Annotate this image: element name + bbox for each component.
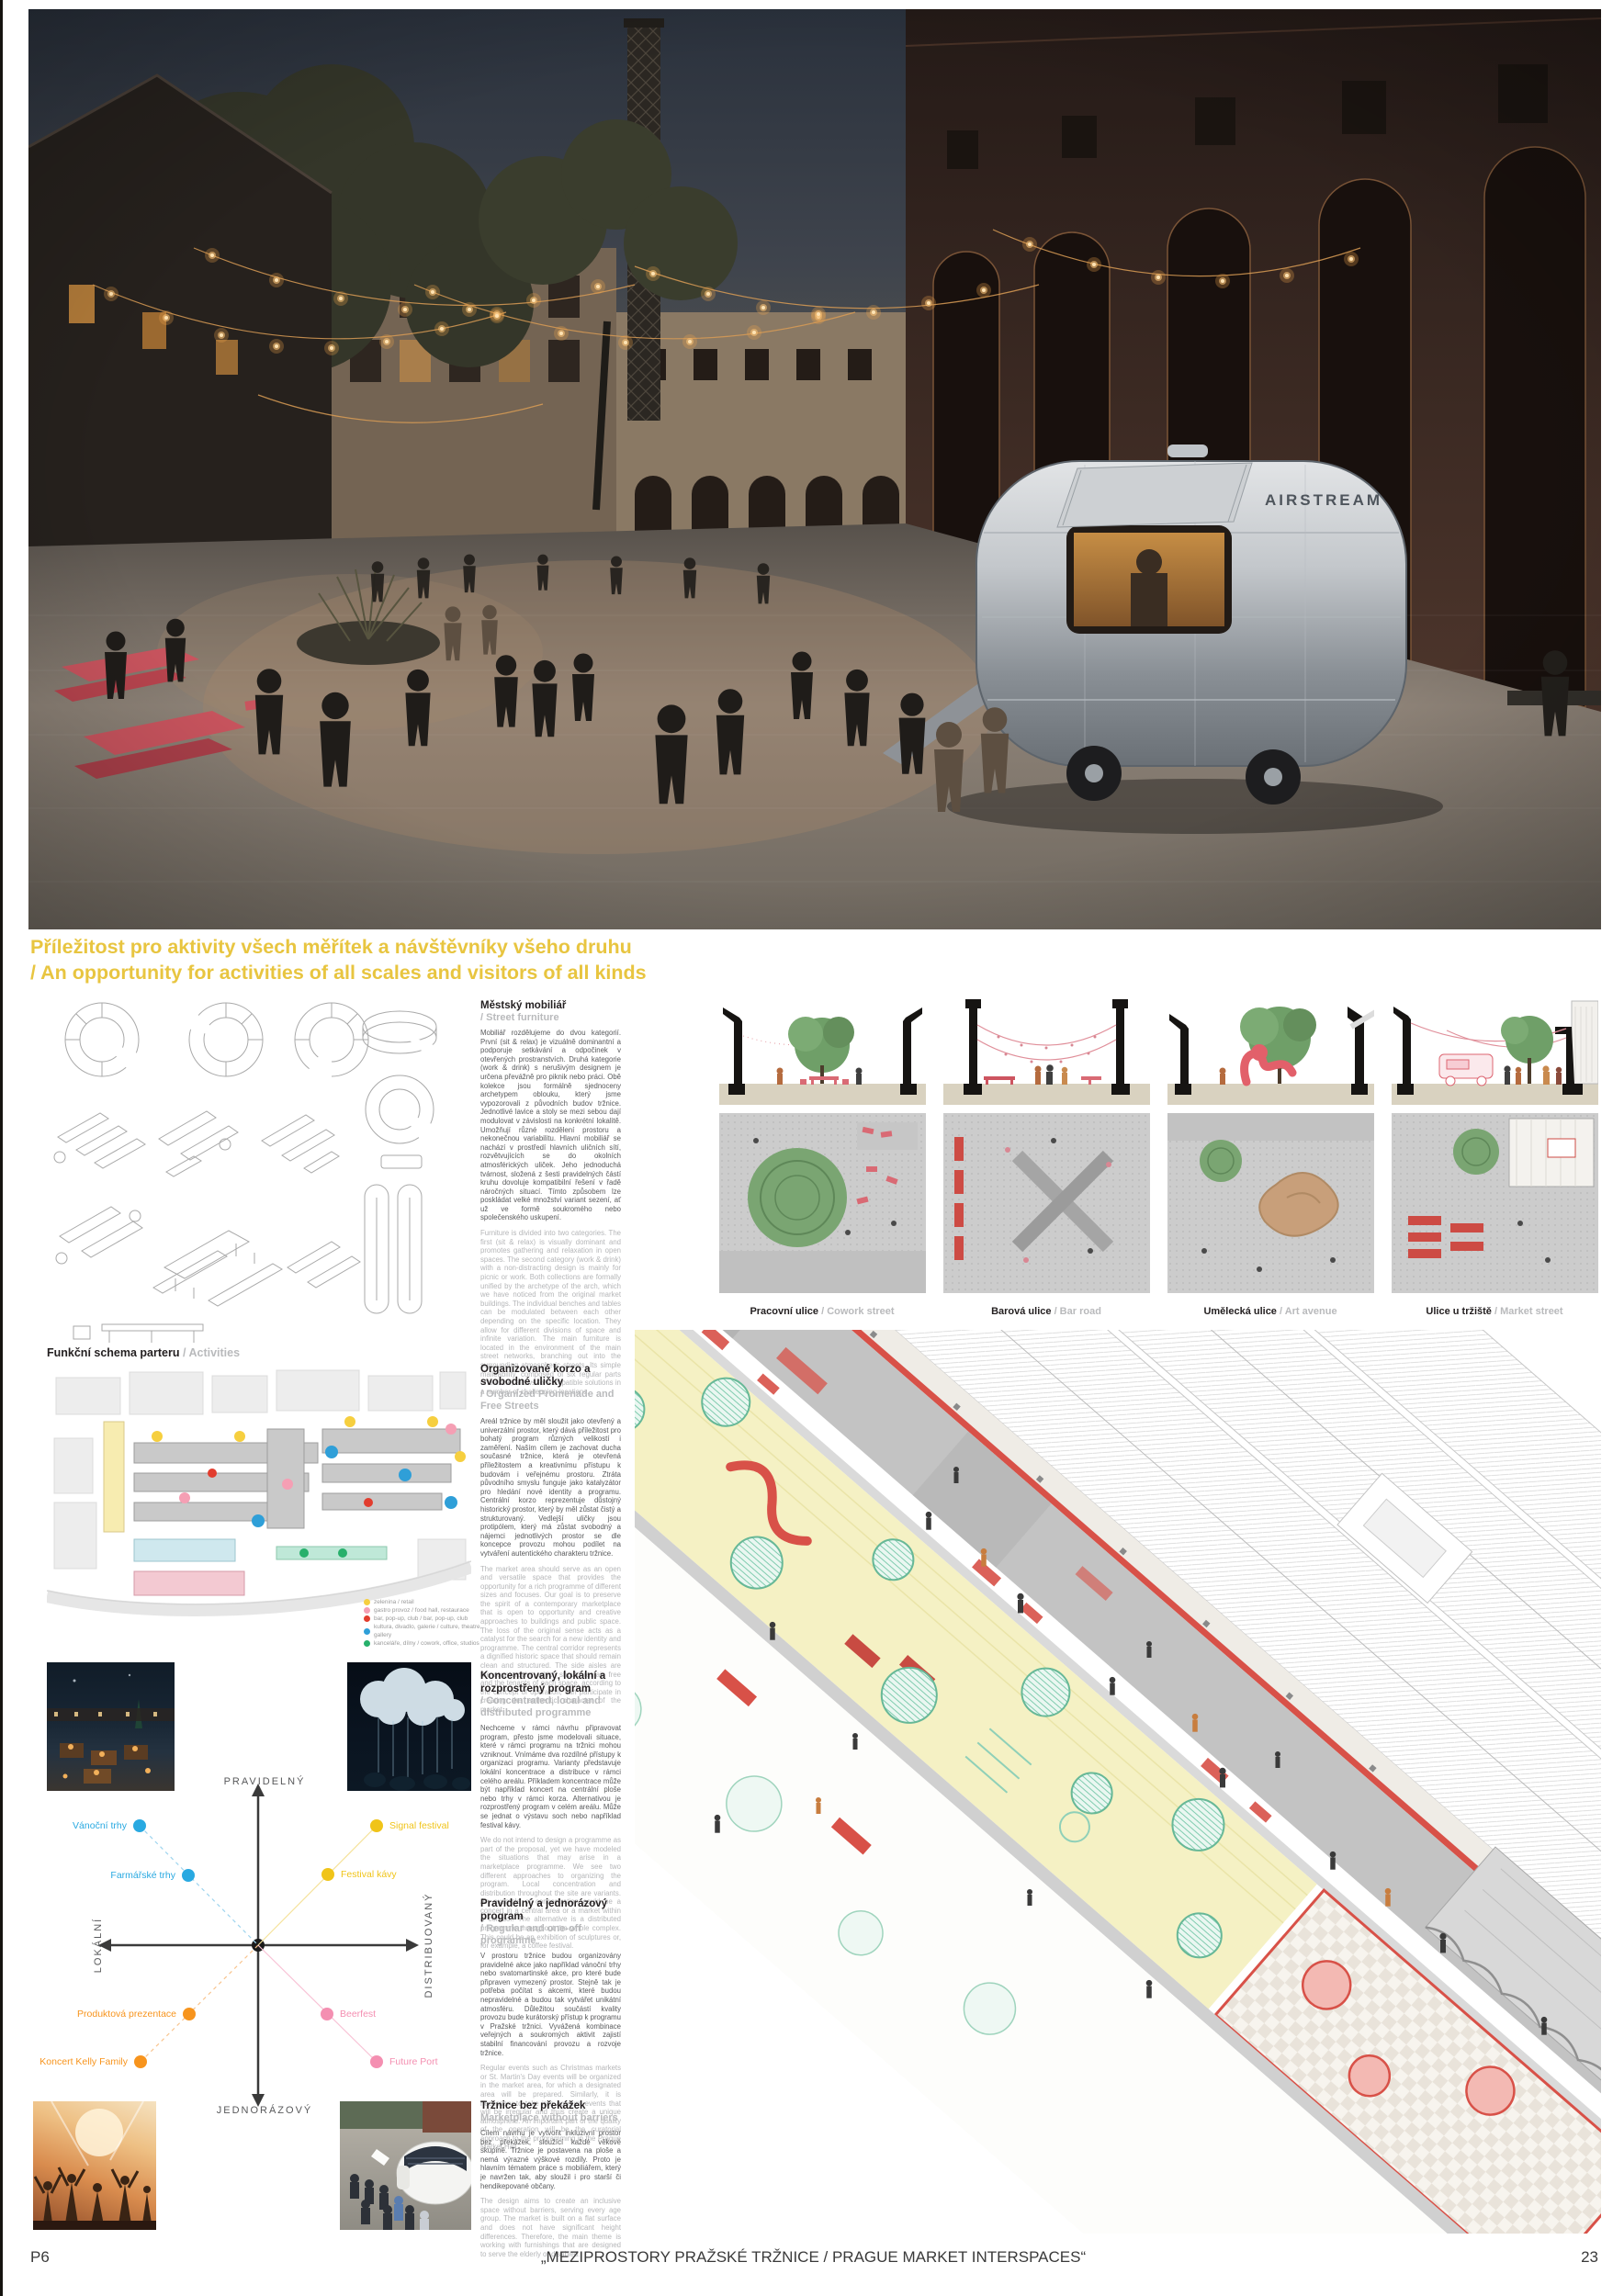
section-title-cz: Koncentrovaný, lokální a rozprostřený pr…: [480, 1670, 621, 1695]
legend-label: bar, pop-up, club / bar, pop-up, club: [374, 1615, 468, 1623]
modular-bench-isometric: [262, 1115, 339, 1173]
street-caption: Ulice u tržiště / Market street: [1384, 1306, 1605, 1317]
competition-board: AIRSTREAM: [0, 0, 1624, 2296]
matrix-point-dot: [321, 2008, 333, 2020]
street-caption: Pracovní ulice / Cowork street: [712, 1306, 932, 1317]
market-hall-plan: [1509, 1119, 1594, 1187]
street-section-cowork: [719, 999, 926, 1105]
matrix-point-label: Produktová prezentace: [77, 2009, 176, 2020]
schema-title: Funkční schema parteru / Activities: [47, 1346, 240, 1359]
street-plan-art: [1167, 1113, 1374, 1293]
street-caption-en: / Market street: [1494, 1306, 1563, 1317]
tree-plan: [1200, 1140, 1242, 1182]
section-body-cz: Mobiliář rozdělujeme do dvou kategorií. …: [480, 1029, 621, 1222]
section-body-cz: Nechceme v rámci návrhu připravovat prog…: [480, 1724, 621, 1829]
street-caption: Barová ulice / Bar road: [936, 1306, 1156, 1317]
matrix-point-dot: [370, 1819, 383, 1832]
headline: Příležitost pro aktivity všech měřítek a…: [30, 935, 647, 985]
legend-item: kanceláře, dílny / cowork, office, studi…: [364, 1639, 492, 1648]
section-body-cz: V prostoru tržnice budou organizovány pr…: [480, 1952, 621, 2057]
street-caption-cz: Ulice u tržiště: [1426, 1306, 1492, 1317]
street-caption-en: / Art avenue: [1280, 1306, 1337, 1317]
street-section-bar: [943, 999, 1150, 1105]
matrix-point-label: Future Port: [389, 2056, 438, 2067]
circular-bench-3d: [363, 1011, 444, 1060]
headline-czech: Příležitost pro aktivity všech měřítek a…: [30, 935, 647, 961]
matrix-point-dot: [370, 2055, 383, 2068]
circular-bench-plan: [65, 1003, 150, 1080]
photo-light-canopy-installation: [347, 1662, 471, 1791]
section-title-en: / Organized Promenade and Free Streets: [480, 1389, 621, 1412]
axis-label-distributed: DISTRIBUOVANÝ: [423, 1892, 434, 1998]
legend-item: kultura, divadlo, galerie / culture, the…: [364, 1623, 492, 1639]
section-title-en: / Concentrated, local and distributed pr…: [480, 1695, 621, 1719]
legend-label: kultura, divadlo, galerie / culture, the…: [374, 1623, 492, 1639]
legend-label: kanceláře, dílny / cowork, office, studi…: [374, 1639, 479, 1648]
section-title-en: / Street furniture: [480, 1012, 621, 1024]
picnic-table-isometric: [153, 1231, 282, 1306]
section-body-cz: Cílem návrhu je vytvořit inkluzivní pros…: [480, 2129, 621, 2190]
tree-plan: [1453, 1129, 1499, 1175]
circular-bench-plan: [366, 1075, 440, 1144]
section-barriers: Tržnice bez překážek Marketplace without…: [480, 2099, 621, 2265]
circular-bench-plan: [175, 1003, 263, 1076]
legend-dot: [364, 1615, 370, 1622]
section-street-furniture: Městský mobiliář / Street furniture Mobi…: [480, 999, 621, 1402]
street-section-market: [1392, 999, 1598, 1105]
legend-label: zelenina / retail: [374, 1598, 414, 1606]
section-title-cz: Organizované korzo a svobodné uličky: [480, 1363, 621, 1389]
section-title-cz: Tržnice bez překážek: [480, 2099, 621, 2112]
matrix-point-dot: [321, 1868, 334, 1881]
bench-elevation: [102, 1324, 203, 1343]
axis-label-regular: PRAVIDELNÝ: [58, 1776, 471, 1787]
street-section-art: [1167, 999, 1374, 1105]
modular-bench-isometric: [159, 1111, 238, 1176]
street-caption-en: / Bar road: [1054, 1306, 1101, 1317]
street-caption-cz: Barová ulice: [991, 1306, 1051, 1317]
bench-plan: [381, 1155, 422, 1168]
street-plan-cowork: [719, 1113, 926, 1293]
street-caption-cz: Umělecká ulice: [1203, 1306, 1277, 1317]
street-caption-cz: Pracovní ulice: [750, 1306, 818, 1317]
section-title-cz: Pravidelný a jednorázový program: [480, 1897, 621, 1923]
section-title-cz: Městský mobiliář: [480, 999, 621, 1012]
programme-matrix: PRAVIDELNÝ JEDNORÁZOVÝ LOKÁLNÍ DISTRIBUO…: [58, 1773, 471, 2122]
legend-item: bar, pop-up, club / bar, pop-up, club: [364, 1615, 492, 1623]
footer-title: „MEZIPROSTORY PRAŽSKÉ TRŽNICE / PRAGUE M…: [3, 2248, 1624, 2267]
section-promenade: Organizované korzo a svobodné uličky / O…: [480, 1363, 621, 1721]
headline-english: / An opportunity for activities of all s…: [30, 961, 647, 986]
hero-night-render: AIRSTREAM: [28, 9, 1601, 929]
matrix-point-dot: [133, 1819, 146, 1832]
matrix-point-label: Farmářské trhy: [110, 1870, 175, 1881]
section-body-cz: Areál tržnice by měl sloužit jako otevře…: [480, 1417, 621, 1559]
photo-christmas-market-aerial: [47, 1662, 175, 1791]
schema-legend: zelenina / retail gastro provoz / food h…: [364, 1598, 492, 1648]
street-caption-en: / Cowork street: [821, 1306, 894, 1317]
furniture-drawings: [28, 992, 473, 1352]
street-plan-market: [1392, 1113, 1598, 1293]
footer-page-number: 23: [1581, 2248, 1598, 2267]
modular-bench-isometric: [288, 1242, 360, 1288]
stool-elevation: [73, 1326, 90, 1339]
legend-item: zelenina / retail: [364, 1598, 492, 1606]
matrix-point-dot: [134, 2055, 147, 2068]
street-plan-bar: [943, 1113, 1150, 1293]
matrix-point-label: Festival kávy: [341, 1869, 397, 1880]
matrix-point-label: Koncert Kelly Family: [39, 2056, 128, 2067]
axis-label-oneoff: JEDNORÁZOVÝ: [58, 2105, 471, 2116]
section-title-en: / Regular and one-off programme: [480, 1923, 621, 1947]
modular-bench-isometric: [56, 1207, 142, 1264]
legend-dot: [364, 1628, 370, 1635]
legend-dot: [364, 1599, 370, 1605]
axis-label-local: LOKÁLNÍ: [93, 1918, 104, 1973]
street-caption: Umělecká ulice / Art avenue: [1160, 1306, 1381, 1317]
tree-plan: [748, 1148, 847, 1247]
tree-icon: [788, 1017, 854, 1084]
tree-icon: [1240, 1007, 1316, 1084]
section-title-en: Marketplace without barriers: [480, 2112, 621, 2124]
matrix-point-label: Beerfest: [340, 2009, 376, 2020]
matrix-point-dot: [182, 1869, 195, 1882]
legend-dot: [364, 1640, 370, 1647]
circular-bench-plan: [295, 1003, 368, 1093]
legend-item: gastro provoz / food hall, restaurace: [364, 1606, 492, 1615]
food-truck-icon: [1439, 1054, 1493, 1086]
matrix-point-label: Signal festival: [389, 1820, 449, 1831]
legend-dot: [364, 1607, 370, 1614]
axonometric-market-illustration: [635, 1330, 1601, 2234]
schema-title-cz: Funkční schema parteru: [47, 1346, 180, 1359]
schema-title-en: / Activities: [183, 1346, 240, 1359]
legend-label: gastro provoz / food hall, restaurace: [374, 1606, 469, 1615]
matrix-point-dot: [183, 2008, 196, 2020]
matrix-point-label: Vánoční trhy: [73, 1820, 127, 1831]
modular-bench-isometric: [54, 1113, 145, 1168]
